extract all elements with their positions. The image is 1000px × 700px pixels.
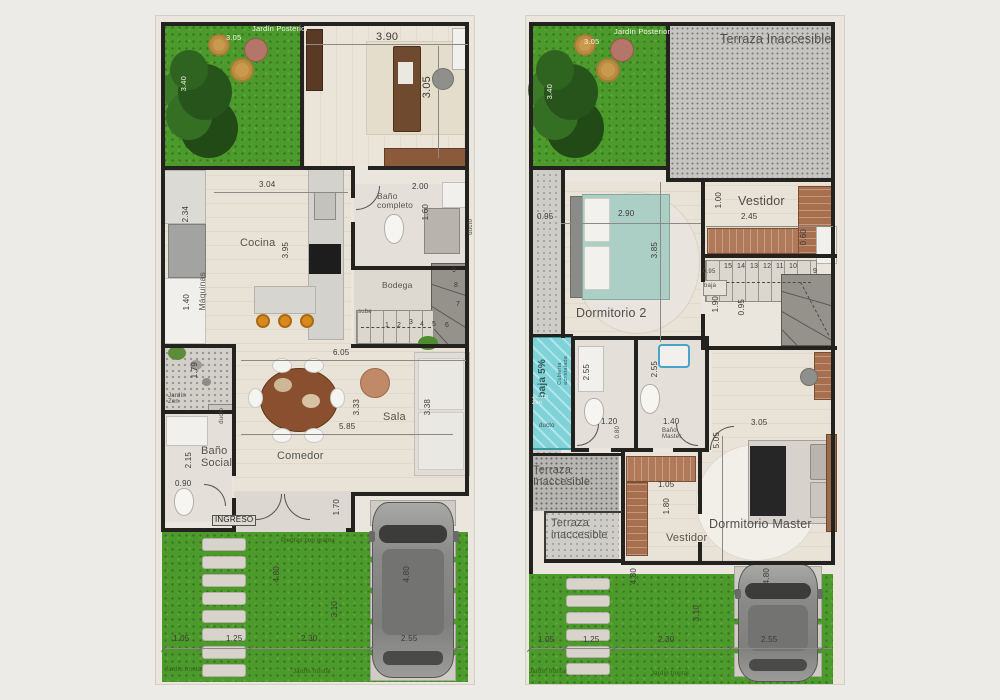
stair-number: 6 [445,322,449,330]
dimension-label: 3.10 [693,605,702,621]
dimension-label: 3.38 [424,399,433,415]
dimension-label: 4.80 [763,568,772,584]
dimension-label: 1.80 [663,498,672,514]
floor-plan-ground: Jardín Posterior3.053.403.903.053.042.34… [155,15,475,685]
comedor-label: Comedor [277,451,324,463]
dimension-label: 1.25 [583,636,599,645]
dimension-label: 3.04 [259,181,275,190]
baja-5-label: baja 5% [538,359,549,398]
plan-label: 3.40 [546,84,554,99]
jardin-zen-label: Jardín Zen [532,395,549,407]
dimension-label: 1.40 [663,418,679,427]
dormitorio-master-label: Dormitorio Master [709,518,812,532]
floor1-labels: Jardín Posterior3.053.403.903.053.042.34… [156,16,474,684]
cocina-label: Cocina [240,238,275,250]
dimension-label: 2.30 [301,635,317,644]
plan-label: 0.80 [615,426,621,438]
dimension-label: 1.25 [226,635,242,644]
dimension-label: 0.95 [537,213,553,222]
plan-label: 3.40 [180,76,188,91]
dimension-label: 6.05 [333,349,349,358]
dimension-label: 2.55 [651,361,660,377]
dimension-label: 4.80 [273,566,282,582]
dormitorio-2-label: Dormitorio 2 [576,307,646,321]
jardin-frontal-label: Jardín frontal [293,669,331,675]
dimension-label: 1.05 [538,636,554,645]
bano-social-label: Baño Social [201,446,232,470]
dimension-label: 3.33 [353,399,362,415]
stair-number: 8 [454,282,458,290]
ingreso-sign: INGRESO [212,515,256,526]
stair-number: 10 [789,263,797,271]
sala-label: Sala [383,412,406,424]
jardin-posterior-label: Jardín Posterior [252,25,308,33]
dimension-label: 5.05 [713,432,722,448]
dimension-label: 1.70 [333,499,342,515]
plan-label: 3.05 [584,38,599,46]
dimension-label: 1.90 [712,296,721,312]
dimension-label: 1.79 [191,362,200,378]
dimension-label: 3.05 [751,419,767,428]
dimension-label: 1.20 [601,418,617,427]
bano-completo-label: Baño completo [377,192,413,210]
dimension-label: 0.95 [738,299,747,315]
jardin-frontal-label: Jardín frontal [651,671,689,677]
floor2-labels: Jardín Posterior3.053.40Terraza Inaccesi… [526,16,844,684]
terraza-inaccesible-label: Terraza inaccesible [551,518,608,542]
maquinas-label: Máquinas [198,272,207,310]
ducto-label: ducto [468,219,474,235]
dimension-label: 3.10 [331,601,340,617]
stair-number: 5 [432,321,436,329]
floorplan-page: { "meta": { "colors": { "grass": "#4d9a2… [0,0,1000,700]
dimension-label: 3.05 [422,76,434,98]
jardin-frontal-label: Jardín frontal [165,667,203,673]
dimension-label: 1.05 [173,635,189,644]
stair-number: 4 [420,321,424,329]
stair-number: 15 [724,263,732,271]
stair-number: 9 [813,268,817,276]
jardin-posterior-label: Jardín Posterior [614,28,670,36]
cubierta-acristalada-label: Cubierta acristalada [558,356,570,385]
dimension-label: 1.05 [658,481,674,490]
jardin-frontal-label: Jardín frontal [529,669,567,675]
stair-number: 7 [456,301,460,309]
jardin-zen-label: Jardín Zen [168,393,186,406]
dimension-label: 2.45 [741,213,757,222]
dimension-label: 1.40 [183,294,192,310]
terraza-inaccesible-label: Terraza Inaccesible [533,465,590,489]
dimension-label: 4.80 [403,566,412,582]
ducto-label: ducto [219,408,225,424]
stair-number: 13 [750,263,758,271]
dimension-label: 2.55 [761,636,777,645]
garden-note: Piedras con grama [281,538,335,544]
stair-number: 9 [452,267,456,275]
terraza-inaccesible-label: Terraza Inaccesible [720,33,832,47]
vestidor-label: Vestidor [738,195,785,209]
plan-label: 0.95 [703,269,715,275]
stair-number: 11 [776,263,784,271]
dimension-label: 0.60 [800,229,809,245]
dimension-label: 3.90 [376,32,398,44]
dimension-label: 1.60 [422,204,431,220]
bano-master-label: Baño Master [662,428,682,441]
vestidor-master-label: Vestidor [666,533,707,545]
stair-number: 3 [409,319,413,327]
dimension-label: 2.55 [583,364,592,380]
stair-number: 1 [385,322,389,330]
stair-number: 14 [737,263,745,271]
floor-plan-upper: Jardín Posterior3.053.40Terraza Inaccesi… [525,15,845,685]
ducto-label: ducto [539,423,555,429]
stair-number: 12 [763,263,771,271]
baja-label: baja [704,283,716,289]
stair-number: 2 [397,322,401,330]
dimension-label: 2.34 [182,206,191,222]
dimension-label: 1.00 [715,192,724,208]
dimension-label: 2.15 [185,452,194,468]
dimension-label: 3.95 [282,242,291,258]
bodega-label: Bodega [382,281,413,290]
plan-label: 3.05 [226,34,241,42]
dimension-label: 2.90 [618,210,634,219]
dimension-label: 4.80 [630,568,639,584]
dimension-label: 0.90 [175,480,191,489]
dimension-label: 2.30 [658,636,674,645]
dimension-label: 5.85 [339,423,355,432]
dimension-label: 2.55 [401,635,417,644]
dimension-label: 3.85 [651,242,660,258]
sube-label: sube [358,309,372,315]
dimension-label: 2.00 [412,183,428,192]
